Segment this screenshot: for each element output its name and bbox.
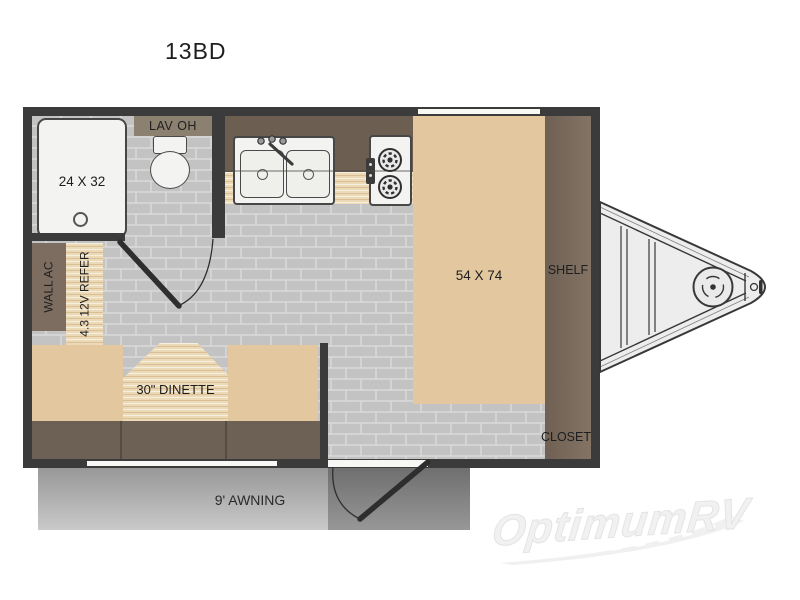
dinette-base-divider [225, 421, 227, 459]
bathroom-wall [23, 233, 125, 241]
wall-right [591, 107, 600, 468]
dinette-end-wall [320, 343, 328, 459]
floorplan-image: 13BD 24 X 32 LAV OH [0, 0, 800, 600]
hitch-coupler-icon [751, 280, 763, 294]
floorplan-title: 13BD [165, 38, 227, 65]
refrigerator-label: 4.3 12V REFER [78, 251, 92, 336]
wall-left [23, 107, 32, 468]
bathroom-divider-wall [212, 116, 225, 238]
shower-pan: 24 X 32 [37, 118, 127, 238]
sink-basin-right [286, 150, 330, 198]
bed-size-label: 54 X 74 [413, 268, 545, 283]
kitchen-sink [233, 136, 335, 205]
stove-knob-icon [369, 174, 372, 177]
window [87, 461, 277, 466]
sink-drain-icon [257, 169, 268, 180]
shower-drain-icon [73, 212, 88, 227]
sink-basin-left [240, 150, 284, 198]
sink-drain-icon [303, 169, 314, 180]
closet-label: CLOSET [533, 430, 591, 444]
dinette-base-divider [120, 421, 122, 459]
window [418, 109, 540, 114]
tongue-jack-wheel-icon [694, 268, 733, 307]
stove-knob-icon [369, 163, 372, 166]
shower-size-label: 24 X 32 [39, 174, 125, 189]
refrigerator: 4.3 12V REFER [66, 243, 103, 345]
entry-door-opening [328, 460, 428, 467]
dinette-seat-right [228, 345, 318, 421]
stove-cooktop [369, 135, 412, 206]
dinette-base [32, 421, 322, 459]
lav-oh-label: LAV OH [149, 119, 197, 133]
shelf-closet-strip [545, 116, 591, 459]
bed [413, 116, 545, 404]
dinette-label: 30" DINETTE [123, 382, 228, 397]
toilet-bowl [150, 151, 190, 189]
lavatory-overhead-cabinet: LAV OH [134, 116, 212, 136]
watermark-logo: OptimumRV [490, 486, 800, 557]
dinette-seat-left [32, 345, 123, 421]
stove-control-panel [366, 158, 375, 184]
wall-ac-unit: WALL AC [32, 243, 66, 331]
trailer-tongue [600, 202, 765, 372]
shelf-label: SHELF [545, 263, 591, 277]
awning-label: 9' AWNING [150, 492, 350, 508]
wall-ac-label: WALL AC [42, 261, 56, 312]
